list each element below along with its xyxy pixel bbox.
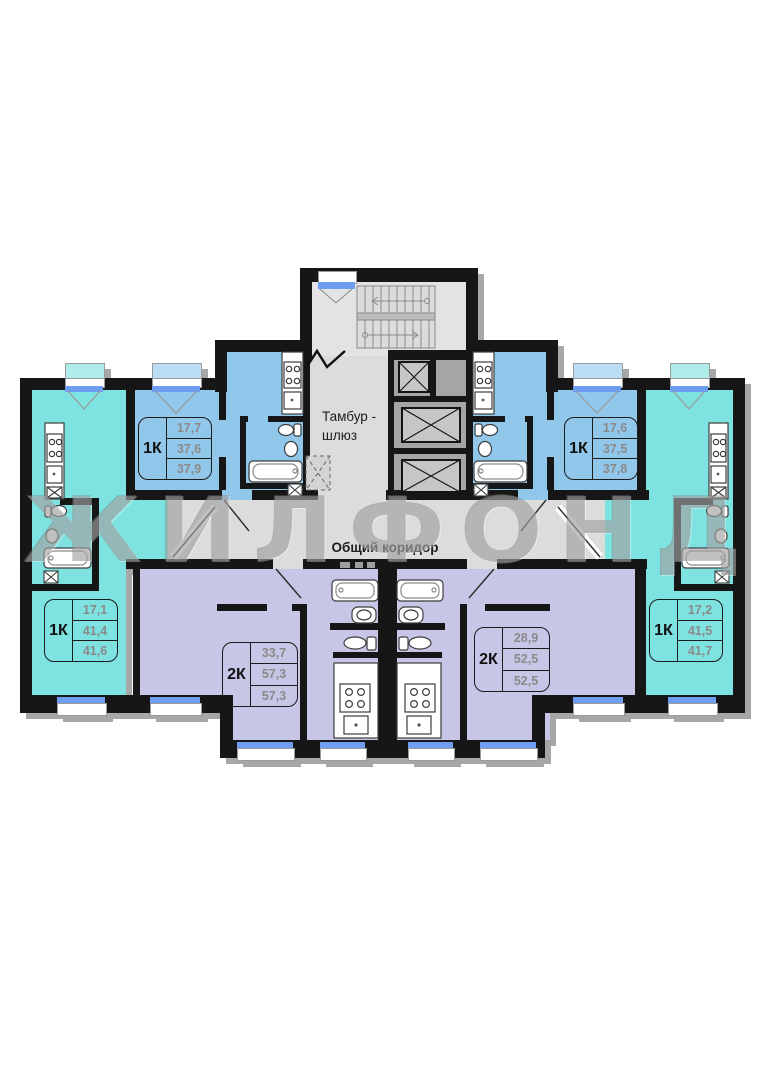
kitchen-unit — [45, 423, 64, 499]
tambur-label-line1: Тамбур - — [322, 407, 376, 426]
area-value: 17,1 — [73, 600, 117, 621]
toilet-icon — [279, 424, 302, 436]
apartment-info-bottom-left: 1К 17,1 41,4 41,6 — [44, 599, 118, 662]
washbasin-icon — [352, 607, 376, 623]
area-value: 37,9 — [167, 459, 211, 479]
apartment-areas: 17,1 41,4 41,6 — [73, 600, 117, 661]
tambur-label: Тамбур - шлюз — [322, 407, 376, 445]
staircase-icon — [357, 286, 435, 348]
apartment-type: 1К — [650, 600, 678, 661]
area-value: 41,5 — [678, 621, 722, 642]
apartment-info-top-right: 1К 17,6 37,5 37,8 — [564, 417, 638, 480]
apartment-areas: 17,7 37,6 37,9 — [167, 418, 211, 479]
area-value: 37,8 — [593, 459, 637, 479]
apartment-type: 1К — [45, 600, 73, 661]
apartment-type: 2К — [223, 643, 251, 706]
washbasin-icon — [399, 607, 423, 623]
toilet-icon — [475, 424, 498, 436]
kitchen-unit — [709, 423, 728, 499]
washing-machine-icon — [44, 571, 58, 583]
bathtub-icon — [474, 461, 527, 482]
washbasin-icon — [479, 442, 492, 457]
apartment-areas: 33,7 57,3 57,3 — [251, 643, 297, 706]
bathtub-icon — [682, 548, 729, 568]
kitchen-unit — [473, 352, 494, 414]
area-value: 17,7 — [167, 418, 211, 439]
area-value: 33,7 — [251, 643, 297, 664]
washbasin-icon — [285, 442, 298, 457]
bathtub-icon — [249, 461, 302, 482]
future-shaft-dashed-icon — [306, 456, 330, 490]
floor-plan-canvas: 1К 17,7 37,6 37,9 1К 17,6 37,5 37,8 1К 1… — [0, 0, 764, 1080]
apartment-areas: 17,6 37,5 37,8 — [593, 418, 637, 479]
toilet-icon — [344, 637, 376, 650]
area-value: 57,3 — [251, 664, 297, 685]
apartment-info-bottom-right: 1К 17,2 41,5 41,7 — [649, 599, 723, 662]
kitchen-unit — [282, 352, 303, 414]
apartment-areas: 17,2 41,5 41,7 — [678, 600, 722, 661]
area-value: 57,3 — [251, 686, 297, 706]
area-value: 37,5 — [593, 439, 637, 460]
area-value: 37,6 — [167, 439, 211, 460]
tambur-label-line2: шлюз — [322, 426, 376, 445]
bathtub-icon — [332, 580, 378, 601]
ventilation-blocks — [340, 562, 375, 568]
toilet-icon — [399, 637, 431, 650]
tambur-entry-door-icon — [304, 351, 345, 371]
bathtub-icon — [44, 548, 91, 568]
kitchen-unit — [334, 663, 378, 738]
elevator-shaft-icon — [399, 362, 460, 492]
apartment-type: 2К — [475, 628, 503, 691]
area-value: 17,2 — [678, 600, 722, 621]
washing-machine-icon — [715, 571, 729, 583]
corridor-label: Общий коридор — [300, 538, 470, 557]
area-value: 41,4 — [73, 621, 117, 642]
apartment-type: 1К — [139, 418, 167, 479]
area-value: 41,6 — [73, 641, 117, 661]
area-value: 52,5 — [503, 671, 549, 691]
washing-machine-icon — [288, 484, 302, 496]
washbasin-icon — [715, 529, 727, 543]
toilet-icon — [45, 506, 67, 518]
washbasin-icon — [46, 529, 58, 543]
apartment-info-top-left: 1К 17,7 37,6 37,9 — [138, 417, 212, 480]
area-value: 28,9 — [503, 628, 549, 649]
toilet-icon — [707, 506, 729, 518]
apartment-type: 1К — [565, 418, 593, 479]
apartment-info-2k-left: 2К 33,7 57,3 57,3 — [222, 642, 298, 707]
washing-machine-icon — [474, 484, 488, 496]
area-value: 41,7 — [678, 641, 722, 661]
bathtub-icon — [397, 580, 443, 601]
area-value: 52,5 — [503, 649, 549, 670]
area-value: 17,6 — [593, 418, 637, 439]
apartment-info-2k-right: 2К 28,9 52,5 52,5 — [474, 627, 550, 692]
apartment-areas: 28,9 52,5 52,5 — [503, 628, 549, 691]
kitchen-unit — [397, 663, 441, 738]
